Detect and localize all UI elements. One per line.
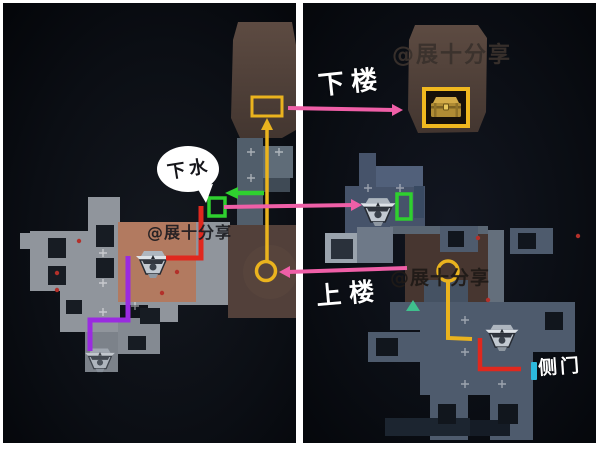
chest-icon <box>431 97 461 117</box>
watermark-left: @展十分享 <box>147 219 232 243</box>
label-upstairs: 上楼 <box>315 271 384 313</box>
side-door-marker <box>531 362 537 380</box>
watermark-top-right: @展十分享 <box>392 37 512 69</box>
label-side-door: 侧门 <box>537 350 583 380</box>
guide-image: 下水 @展十分享 下楼 上楼 侧门 @展十分享 @展十分享 <box>0 0 600 450</box>
watermark-mid-right: @展十分享 <box>390 263 490 290</box>
chest-highlight <box>424 89 468 126</box>
left-upper-room <box>231 22 296 138</box>
panel-divider <box>296 0 303 450</box>
label-downstairs: 下楼 <box>316 59 386 103</box>
